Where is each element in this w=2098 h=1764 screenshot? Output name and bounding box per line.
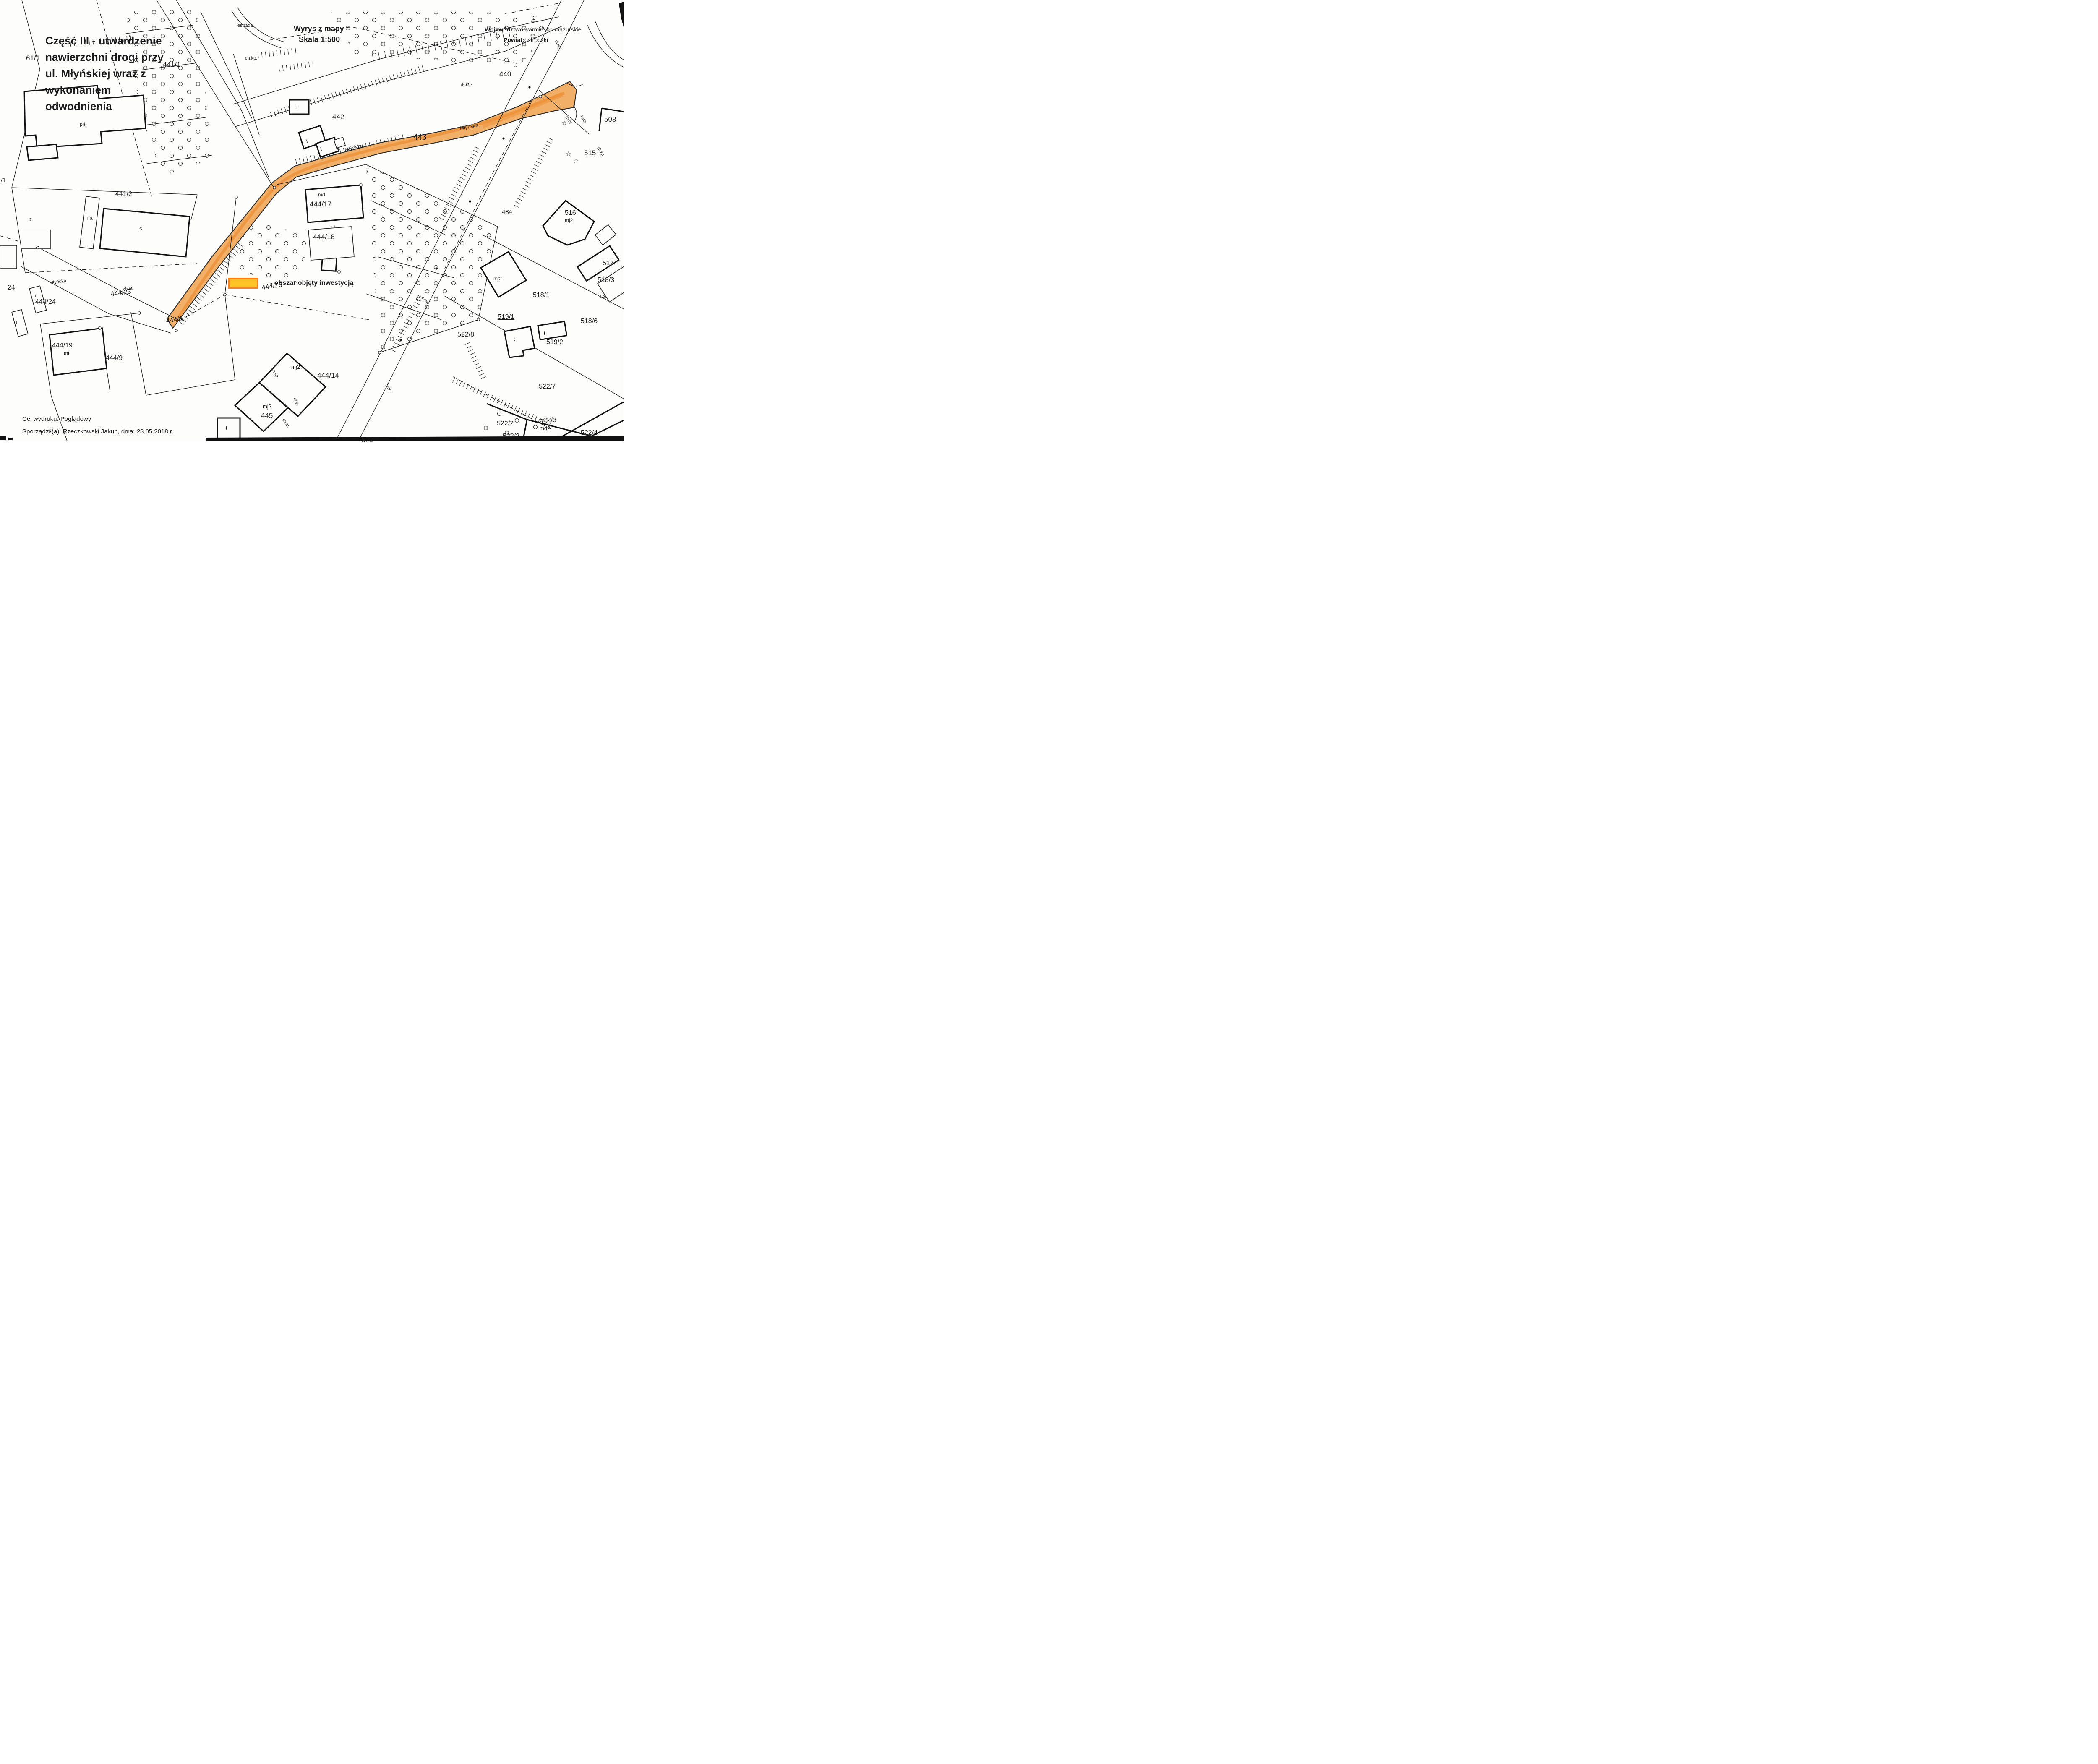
map-label-ib: i.b.	[600, 295, 606, 299]
map-label-440: 440	[499, 70, 511, 78]
map-label-445: 445	[261, 412, 273, 419]
map-label-1: /1	[1, 177, 6, 183]
map-label-5191: 519/1	[498, 314, 514, 321]
map-label-5222: 522/2	[503, 433, 519, 440]
legend: - obszar objęty inwestycją	[228, 278, 353, 289]
map-label-5181: 518/1	[533, 292, 550, 299]
map-label-443: 443	[413, 133, 427, 141]
map-label-t2: t2	[531, 15, 536, 21]
voivodeship-value: warmińsko-mazurskie	[524, 26, 581, 33]
map-label-516: 516	[565, 210, 576, 217]
map-label-md2: md2	[540, 425, 550, 431]
map-label-i: i	[16, 321, 17, 325]
page-title: Część III - utwardzenienawierzchni drogi…	[45, 33, 164, 115]
map-label-mt2: mt2	[493, 276, 502, 281]
map-label-44417: 444/17	[310, 201, 331, 208]
map-label-t: t	[226, 425, 227, 431]
map-label-5224: 522/4	[581, 430, 598, 436]
county-label: Powiat:	[504, 37, 524, 43]
map-label-ib: i.b.	[87, 217, 94, 221]
legend-swatch	[228, 278, 258, 289]
map-label-i: i	[296, 104, 297, 110]
map-label-chkp: ch.kp.	[245, 56, 257, 61]
legend-label: - obszar objęty inwestycją	[270, 279, 353, 287]
star-icon: ☆	[561, 120, 567, 126]
map-label-s: s	[139, 226, 142, 231]
map-label-mj2: mj2	[565, 218, 573, 223]
map-label-i: i	[328, 255, 329, 261]
map-label-mj2: mj2	[263, 404, 271, 409]
map-type-heading: Wyrys z mapy	[294, 24, 344, 33]
voivodeship-label: Województwo:	[485, 26, 525, 33]
map-label-mj2: mj2	[291, 364, 300, 370]
map-label-24: 24	[8, 284, 15, 291]
map-label-611: 61/1	[26, 55, 40, 62]
star-icon: ☆	[566, 151, 571, 157]
star-icon: ☆	[573, 158, 579, 164]
map-label-44418: 444/18	[313, 233, 335, 240]
map-label-523: 523	[362, 437, 373, 444]
map-label-5192: 519/2	[546, 339, 563, 346]
map-label-estrada: estrada	[237, 23, 253, 28]
map-label-p4: p4	[80, 122, 85, 127]
map-label-44419: 444/19	[52, 342, 73, 349]
map-label-484: 484	[502, 209, 512, 215]
map-label-5222: 522/2	[497, 420, 514, 427]
map-label-t: t	[514, 337, 515, 342]
map-label-mt: mt	[64, 351, 69, 356]
map-label-ib: i.b.	[331, 225, 338, 230]
map-label-442: 442	[332, 113, 344, 120]
map-label-4411: 441/1	[163, 61, 181, 68]
map-label-5227: 522/7	[539, 384, 556, 390]
buildings-group	[24, 86, 624, 441]
map-label-md: md	[318, 192, 325, 197]
scanned-map-page: { "header": { "title_lines": ["Część III…	[0, 0, 624, 441]
orchard-symbols-group	[126, 8, 554, 435]
map-label-t: t	[544, 331, 545, 336]
map-label-508: 508	[604, 116, 616, 123]
print-purpose: Cel wydruku: Poglądowy	[22, 415, 91, 423]
map-label-i: i	[35, 294, 36, 298]
map-label-517: 517	[603, 260, 614, 267]
county-value: ostródzki	[524, 37, 548, 43]
map-label-4449: 444/9	[106, 355, 123, 362]
map-label-515: 515	[584, 149, 596, 157]
map-label-44414: 444/14	[317, 372, 339, 379]
map-label-5223: 522/3	[540, 417, 556, 424]
map-label-5183: 518/3	[598, 277, 614, 284]
map-scale: Skala 1:500	[299, 35, 340, 44]
map-label-s: s	[29, 217, 32, 222]
prepared-by: Sporządził(a): Rzeczkowski Jakub, dnia: …	[22, 428, 173, 435]
map-label-44424: 444/24	[35, 299, 56, 305]
map-label-4412: 441/2	[115, 191, 132, 198]
map-label-5228: 522/8	[457, 331, 474, 338]
map-label-5186: 518/6	[581, 318, 598, 325]
